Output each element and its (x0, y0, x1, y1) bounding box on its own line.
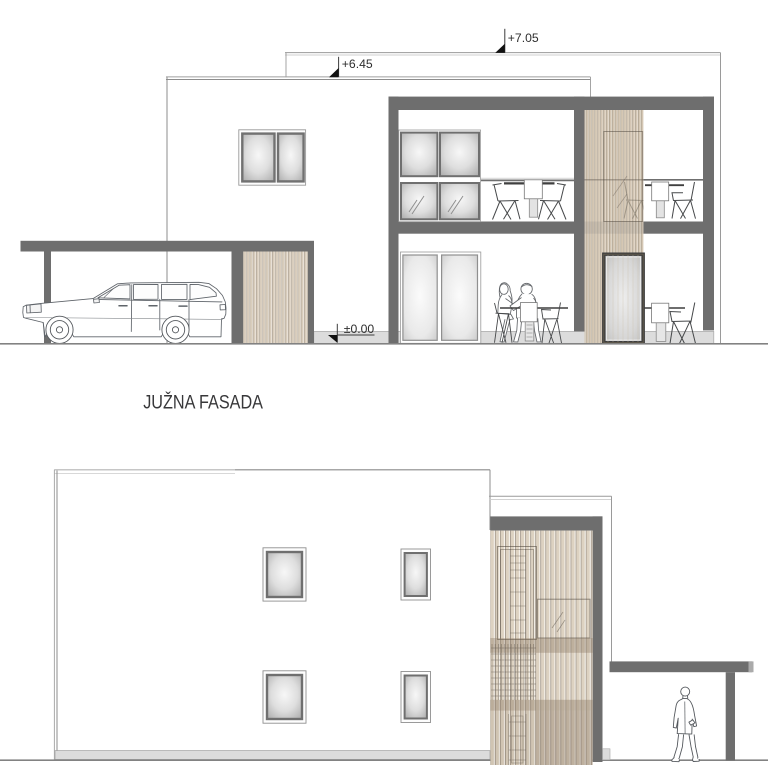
svg-text:JUŽNA FASADA: JUŽNA FASADA (143, 390, 264, 413)
svg-text:+6.45: +6.45 (342, 57, 373, 71)
svg-text:±0.00: ±0.00 (344, 322, 375, 336)
svg-text:+7.05: +7.05 (508, 31, 539, 45)
